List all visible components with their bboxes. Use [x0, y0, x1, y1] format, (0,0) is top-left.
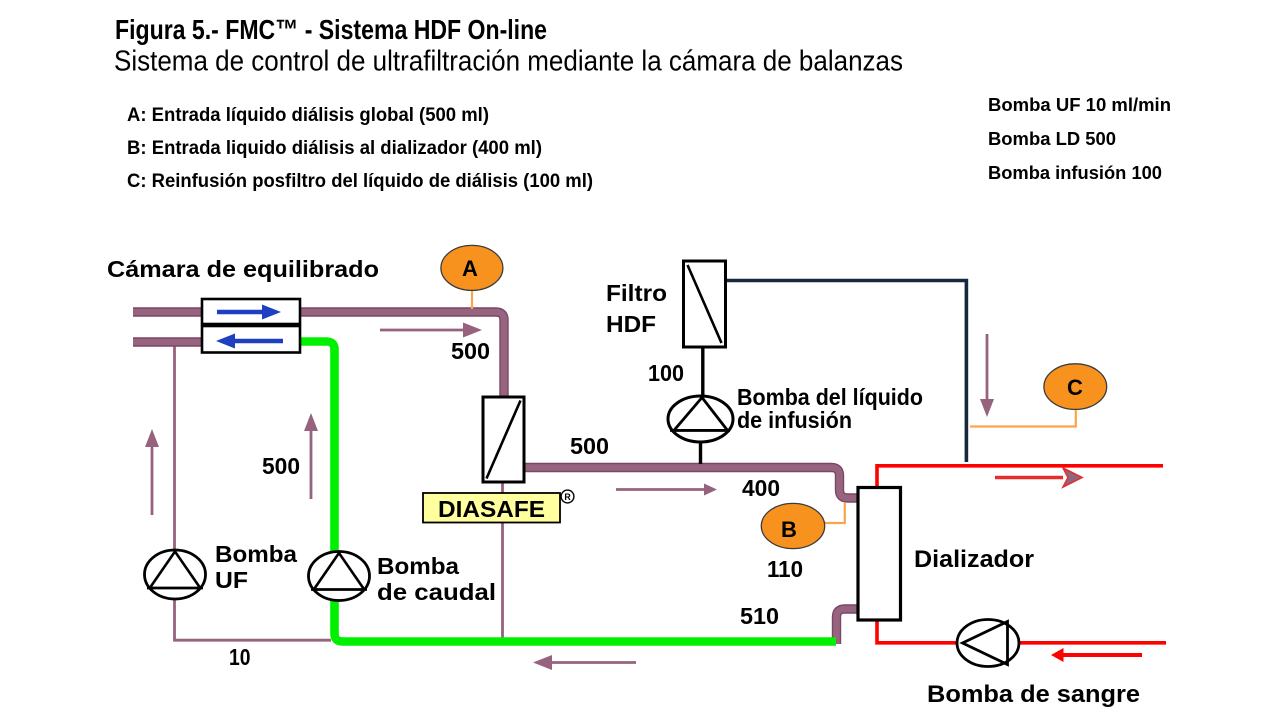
svg-text:Sistema de control de ultrafil: Sistema de control de ultrafiltración me…	[114, 46, 903, 78]
svg-text:C: C	[1067, 375, 1083, 400]
svg-text:Bomba UF 10 ml/min: Bomba UF 10 ml/min	[988, 95, 1171, 115]
svg-text:Bomba LD 500: Bomba LD 500	[988, 129, 1116, 149]
svg-text:10: 10	[229, 644, 251, 670]
svg-text:HDF: HDF	[606, 311, 656, 337]
svg-text:B: Entrada liquido diálisis al: B: Entrada liquido diálisis al dializado…	[127, 138, 542, 159]
svg-text:Bomba: Bomba	[377, 553, 459, 579]
svg-text:B: B	[781, 517, 797, 542]
svg-text:400: 400	[742, 475, 780, 501]
svg-text:UF: UF	[215, 567, 248, 593]
svg-text:500: 500	[451, 338, 490, 364]
svg-text:C: Reinfusión posfiltro del lí: C: Reinfusión posfiltro del líquido de d…	[127, 171, 593, 192]
svg-text:A: Entrada líquido diálisis gl: A: Entrada líquido diálisis global (500 …	[127, 105, 489, 126]
svg-text:de caudal: de caudal	[377, 579, 496, 605]
svg-text:Filtro: Filtro	[606, 280, 667, 306]
svg-text:Figura 5.- FMC™ - Sistema HDF: Figura 5.- FMC™ - Sistema HDF On-line	[115, 14, 547, 45]
svg-text:DIASAFE: DIASAFE	[438, 496, 545, 522]
svg-text:500: 500	[570, 433, 609, 459]
svg-text:110: 110	[767, 556, 803, 582]
svg-text:Cámara de equilibrado: Cámara de equilibrado	[107, 256, 379, 282]
svg-text:A: A	[462, 256, 478, 281]
svg-text:100: 100	[648, 360, 684, 386]
svg-text:Dializador: Dializador	[914, 546, 1034, 573]
svg-text:R: R	[564, 492, 571, 502]
svg-text:510: 510	[740, 603, 779, 629]
svg-text:Bomba infusión 100: Bomba infusión 100	[988, 163, 1162, 183]
svg-text:500: 500	[262, 453, 300, 479]
svg-text:Bomba: Bomba	[215, 541, 297, 567]
svg-text:Bomba de sangre: Bomba de sangre	[927, 681, 1140, 708]
svg-text:de infusión: de infusión	[737, 407, 852, 433]
